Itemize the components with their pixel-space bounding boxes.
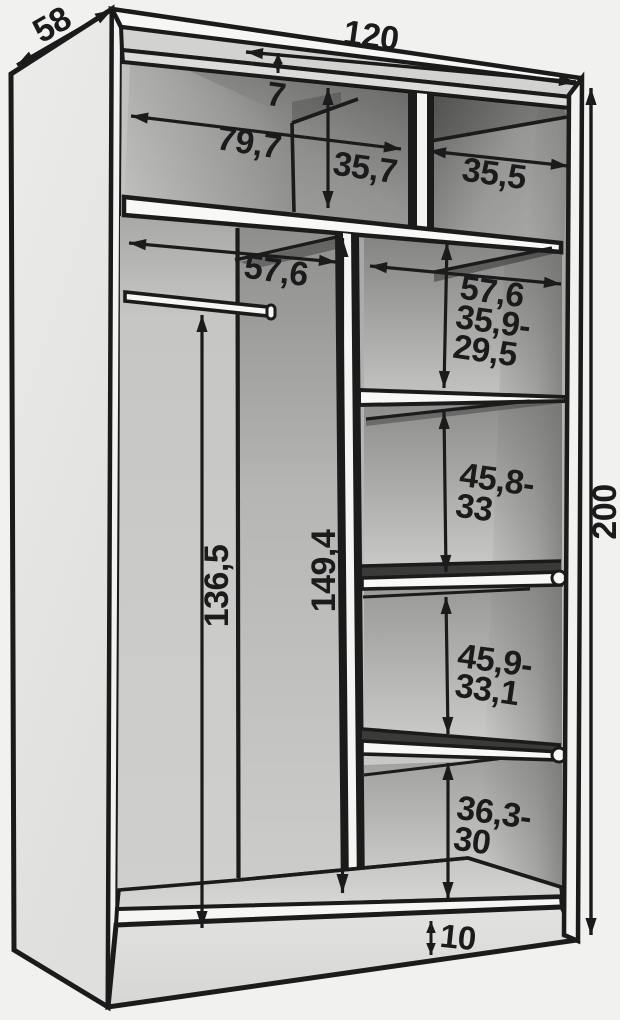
- svg-text:200: 200: [586, 484, 620, 539]
- svg-text:136,5: 136,5: [198, 545, 236, 628]
- svg-text:33: 33: [453, 487, 495, 530]
- svg-text:149,4: 149,4: [305, 529, 343, 612]
- svg-text:120: 120: [341, 13, 401, 58]
- svg-text:30: 30: [451, 820, 493, 863]
- svg-text:10: 10: [438, 917, 477, 958]
